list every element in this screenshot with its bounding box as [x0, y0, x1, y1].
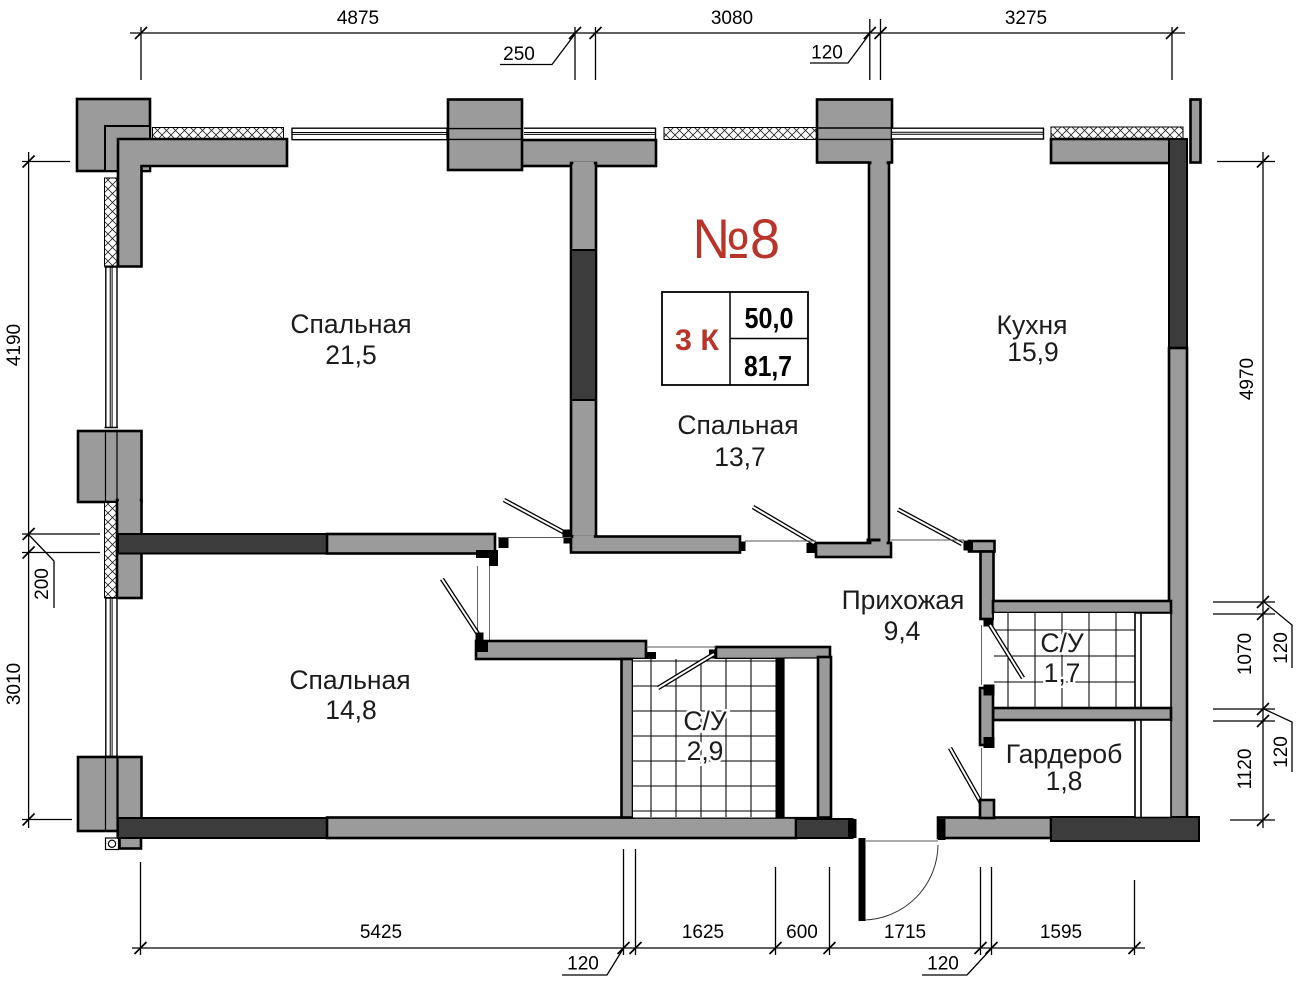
svg-text:1120: 1120	[1235, 749, 1256, 790]
svg-text:81,7: 81,7	[744, 351, 792, 383]
svg-text:120: 120	[1271, 736, 1292, 768]
svg-text:14,8: 14,8	[325, 695, 377, 725]
svg-text:4190: 4190	[4, 324, 25, 366]
svg-text:3275: 3275	[1005, 8, 1047, 29]
svg-text:1715: 1715	[884, 922, 926, 943]
svg-text:50,0: 50,0	[745, 303, 794, 335]
svg-text:1595: 1595	[1040, 922, 1082, 943]
svg-text:1625: 1625	[682, 922, 724, 943]
svg-text:Спальная: Спальная	[290, 309, 411, 339]
svg-text:250: 250	[503, 44, 535, 65]
svg-text:1,7: 1,7	[1044, 658, 1081, 688]
svg-text:9,4: 9,4	[884, 616, 921, 646]
svg-text:5425: 5425	[360, 922, 402, 943]
svg-text:200: 200	[32, 568, 53, 600]
svg-text:№8: №8	[692, 207, 780, 270]
svg-text:4875: 4875	[337, 8, 379, 29]
svg-text:21,5: 21,5	[325, 340, 377, 370]
svg-text:3080: 3080	[711, 8, 753, 29]
svg-text:Спальная: Спальная	[677, 410, 798, 440]
svg-text:120: 120	[927, 954, 959, 975]
svg-text:С/У: С/У	[683, 706, 727, 736]
svg-text:Спальная: Спальная	[289, 665, 410, 695]
svg-text:120: 120	[811, 43, 843, 64]
svg-text:120: 120	[567, 954, 599, 975]
svg-text:4970: 4970	[1237, 358, 1258, 400]
svg-text:600: 600	[786, 922, 818, 943]
svg-text:Кухня: Кухня	[997, 310, 1068, 340]
svg-text:Гардероб: Гардероб	[1006, 739, 1123, 769]
svg-text:С/У: С/У	[1040, 628, 1084, 658]
svg-text:1,8: 1,8	[1046, 766, 1083, 796]
svg-text:13,7: 13,7	[714, 442, 766, 472]
svg-text:3010: 3010	[4, 663, 25, 705]
svg-text:15,9: 15,9	[1007, 337, 1059, 367]
svg-text:1070: 1070	[1235, 633, 1256, 675]
svg-text:2,9: 2,9	[687, 736, 724, 766]
svg-text:Прихожая: Прихожая	[842, 585, 965, 615]
svg-text:3 К: 3 К	[675, 324, 720, 357]
svg-text:120: 120	[1271, 632, 1292, 664]
